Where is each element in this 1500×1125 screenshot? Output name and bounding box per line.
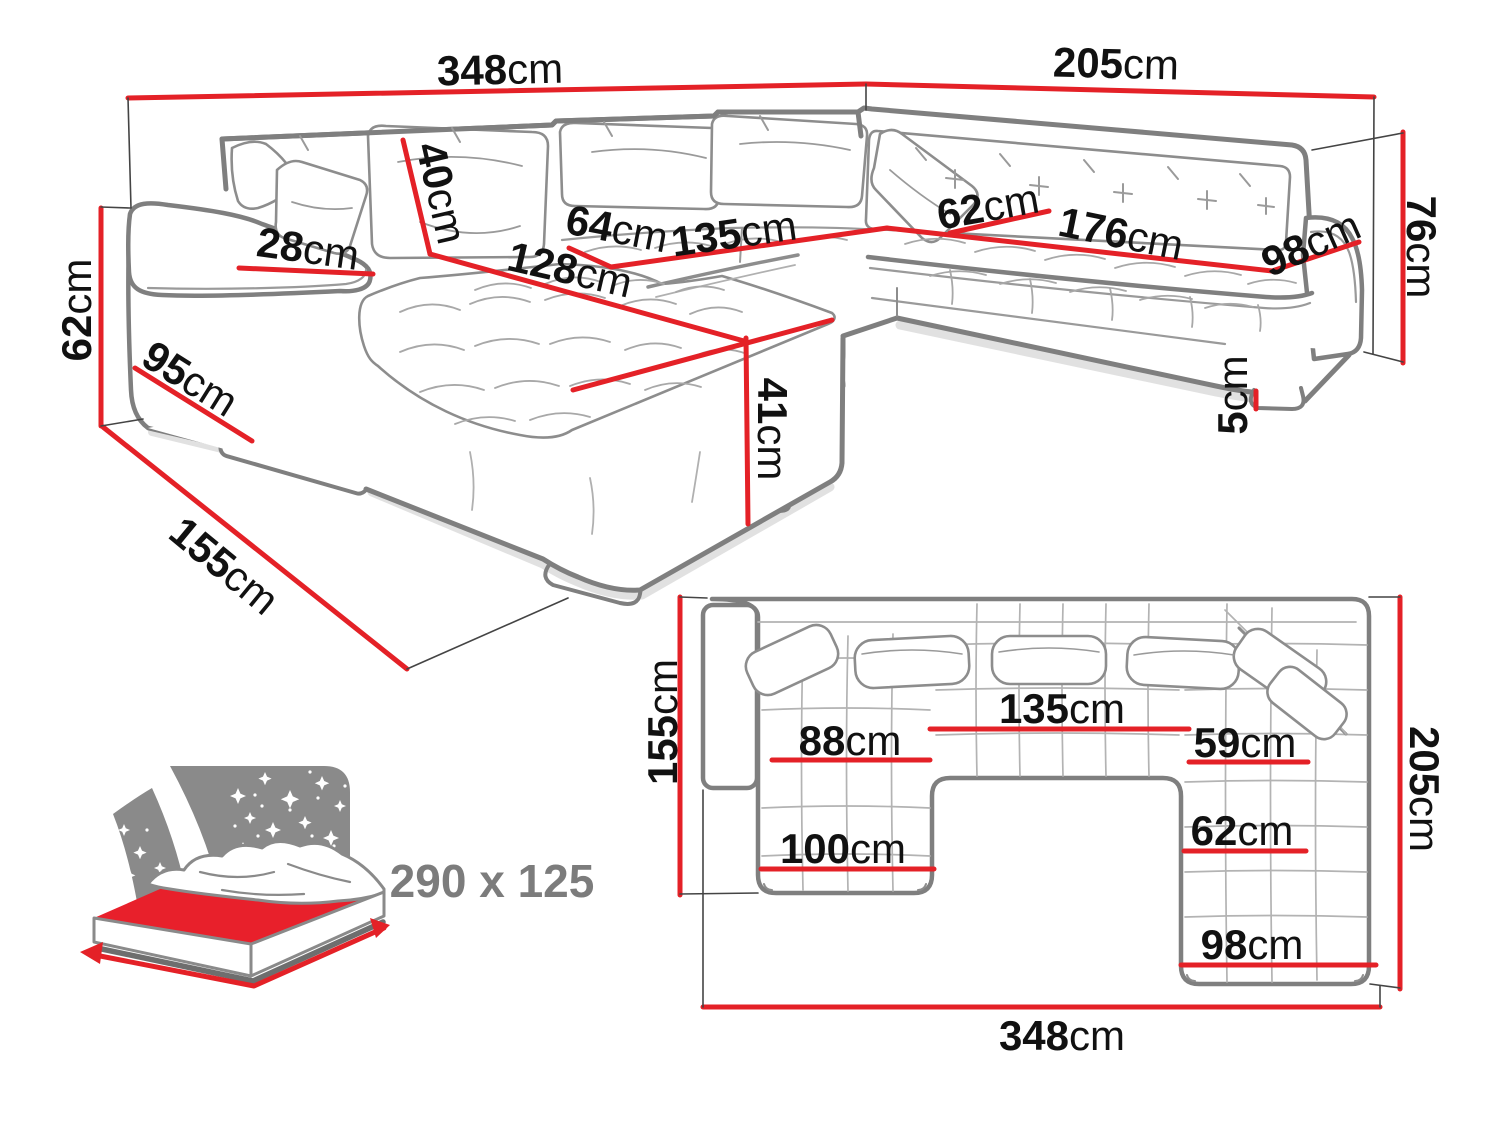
svg-text:348cm: 348cm <box>436 45 563 95</box>
svg-text:290 x 125: 290 x 125 <box>390 855 595 907</box>
svg-text:59cm: 59cm <box>1194 719 1297 766</box>
svg-text:205cm: 205cm <box>1401 726 1448 852</box>
svg-text:100cm: 100cm <box>780 825 906 872</box>
svg-text:88cm: 88cm <box>799 717 902 764</box>
svg-text:348cm: 348cm <box>999 1012 1125 1059</box>
svg-text:5cm: 5cm <box>1209 355 1256 434</box>
svg-text:62cm: 62cm <box>1191 807 1294 854</box>
svg-text:76cm: 76cm <box>1398 196 1445 299</box>
svg-text:41cm: 41cm <box>749 378 796 481</box>
svg-text:135cm: 135cm <box>999 685 1125 732</box>
svg-text:155cm: 155cm <box>639 659 686 785</box>
svg-text:62cm: 62cm <box>53 259 100 362</box>
svg-text:205cm: 205cm <box>1052 38 1179 88</box>
svg-text:98cm: 98cm <box>1201 921 1304 968</box>
